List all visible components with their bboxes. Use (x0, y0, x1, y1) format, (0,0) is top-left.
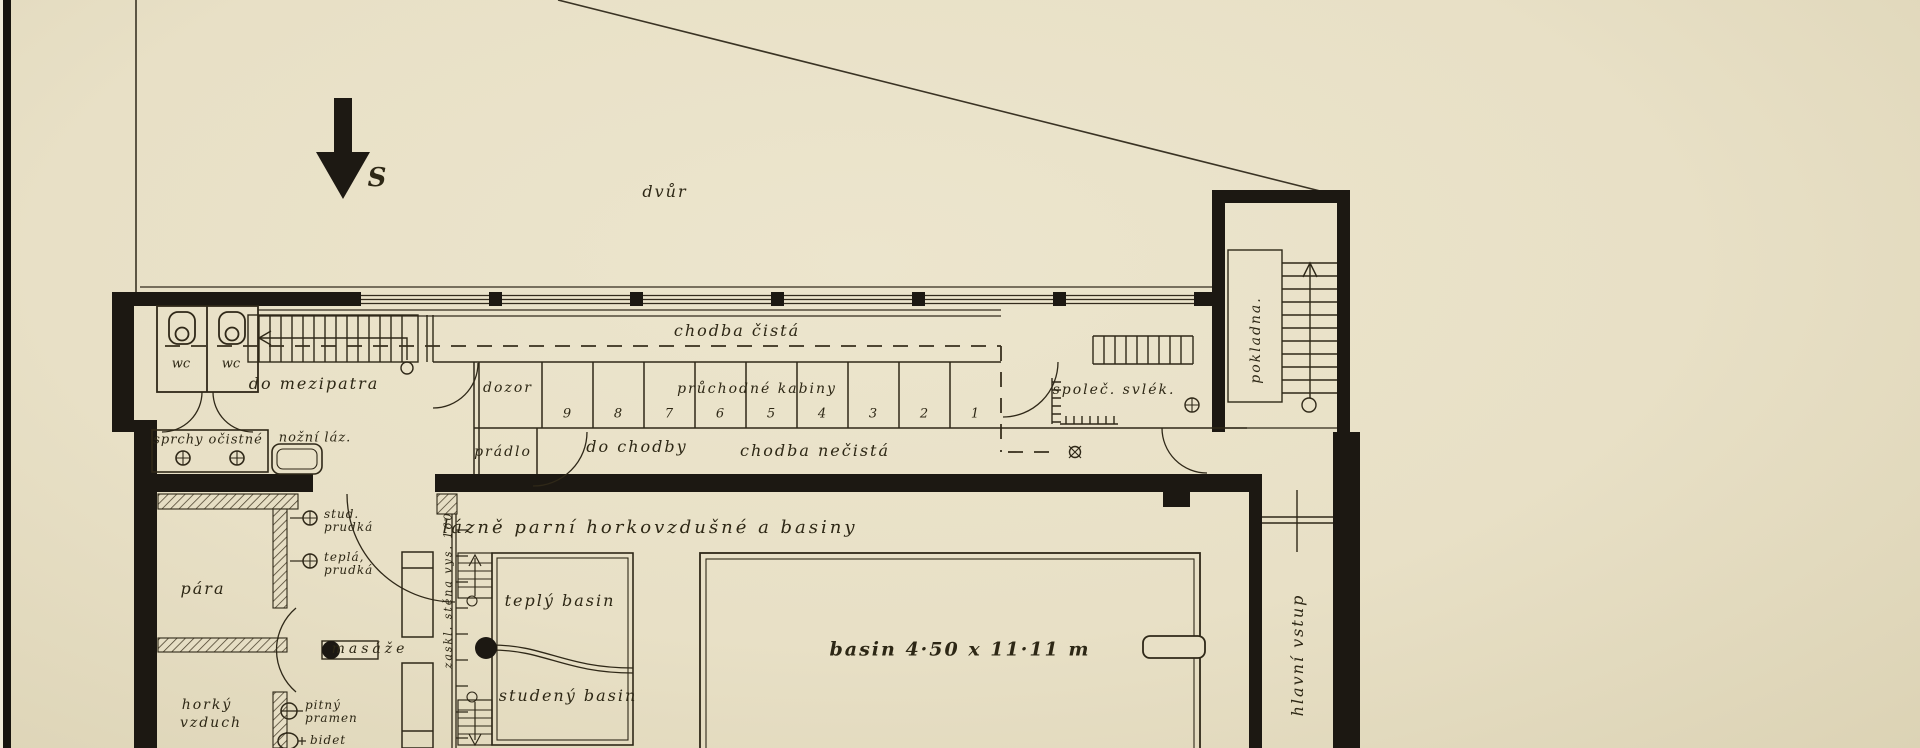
dozor-label: dozor (483, 381, 533, 395)
hall-title-label: lázně parní horkovzdušné a basiny (442, 519, 857, 537)
cabin-number-4: 4 (818, 408, 826, 421)
chodba-cista-label: chodba čistá (674, 323, 800, 339)
sprchy-ocistne-label: sprchy očistné (153, 434, 263, 447)
para-label: pára (181, 581, 226, 597)
cabin-number-9: 9 (563, 408, 571, 421)
teply-basin-label: teplý basin (505, 593, 616, 609)
spolec-svlek-label: společ. svlék. (1053, 383, 1176, 397)
pokladna-block (1225, 250, 1337, 428)
cabins-grid (433, 362, 1247, 486)
cabin-number-7: 7 (665, 408, 673, 421)
nozni-laz-label: nožní láz. (279, 432, 352, 445)
studeny-basin-label: studený basin (499, 688, 638, 704)
cabin-number-1: 1 (971, 408, 979, 421)
cabin-number-8: 8 (614, 408, 622, 421)
masaze-label: masáže (332, 642, 409, 656)
site-lines (136, 0, 1348, 292)
cabin-number-2: 2 (920, 408, 928, 421)
basin-dimension-label: basin 4·50 x 11·11 m (830, 641, 1091, 660)
pokladna-label: pokladna. (1249, 296, 1263, 383)
horky-vzduch-label-1: horký (182, 698, 233, 712)
entrance-corridor (1262, 490, 1333, 552)
cabin-number-3: 3 (869, 408, 877, 421)
chodba-necista-label: chodba nečistá (740, 443, 890, 459)
cabin-number-5: 5 (767, 408, 775, 421)
cabin-number-6: 6 (716, 408, 724, 421)
floor-plan-scan: S dvůr wc wc do mezipatra chodba čistá d… (0, 0, 1920, 748)
courtyard-label: dvůr (642, 184, 687, 200)
tepla-prudka-label-2: prudká (324, 564, 373, 576)
wc-right-label: wc (222, 358, 240, 371)
stud-prudka-label-2: prudká (324, 521, 373, 533)
pradlo-label: prádlo (474, 445, 532, 459)
hlavni-vstup-label: hlavní vstup (1290, 594, 1306, 717)
compass-south-label: S (368, 165, 389, 191)
stud-prudka-label-1: stud. (324, 508, 359, 520)
do-mezipatra-label: do mezipatra (249, 376, 380, 392)
wc-left-label: wc (172, 358, 190, 371)
pruchodne-kabiny-label: průchodné kabiny (677, 382, 837, 396)
do-chodby-label: do chodby (586, 439, 687, 455)
pitny-pramen-label-1: pitný (305, 699, 341, 711)
small-pools (458, 553, 633, 745)
tepla-prudka-label-1: teplá, (324, 551, 364, 563)
north-arrow-icon (316, 98, 370, 199)
horky-vzduch-label-2: vzduch (180, 716, 242, 730)
bidet-label: bidet (310, 734, 346, 746)
spolec-svlek-area (1052, 336, 1207, 473)
pitny-pramen-label-2: pramen (305, 712, 358, 724)
